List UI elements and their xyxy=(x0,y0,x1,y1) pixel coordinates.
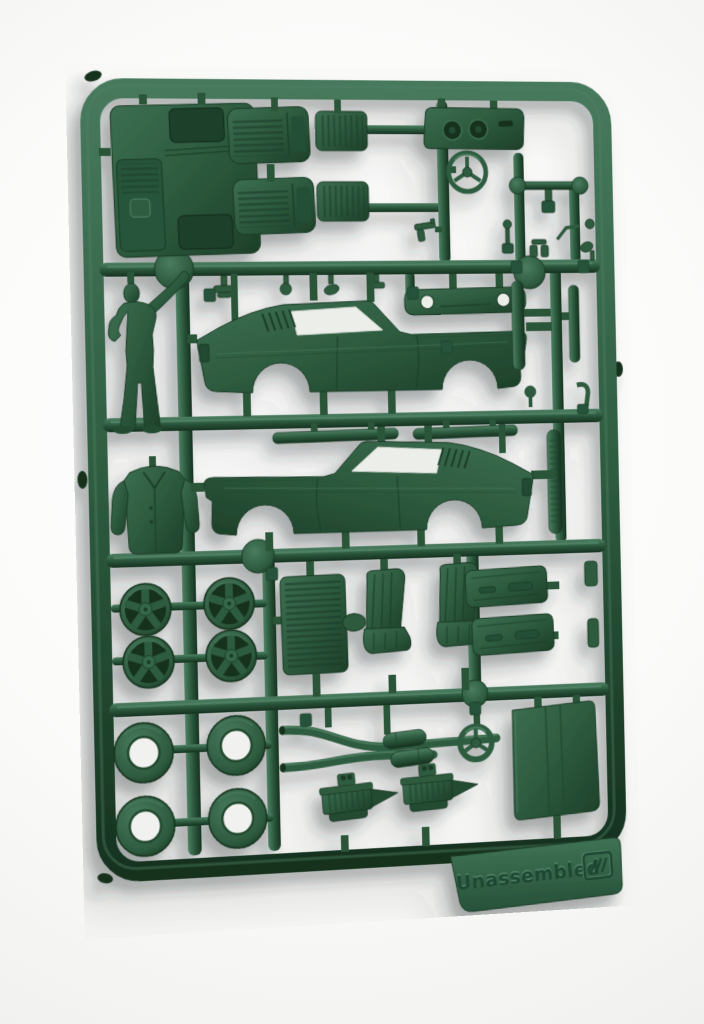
engine-blocks xyxy=(318,759,480,853)
front-valance xyxy=(404,273,526,315)
body-side-lower xyxy=(203,438,534,536)
sprue: Unassembled Unassembled xyxy=(65,64,641,940)
hood-panel xyxy=(512,694,600,841)
steering-wheel xyxy=(446,153,486,192)
chassis-frame-part xyxy=(315,100,438,222)
door-panels xyxy=(465,561,599,656)
small-clip-parts xyxy=(213,274,385,297)
radiator-grille xyxy=(272,560,368,699)
photo-stage: Unassembled Unassembled xyxy=(0,0,704,1024)
